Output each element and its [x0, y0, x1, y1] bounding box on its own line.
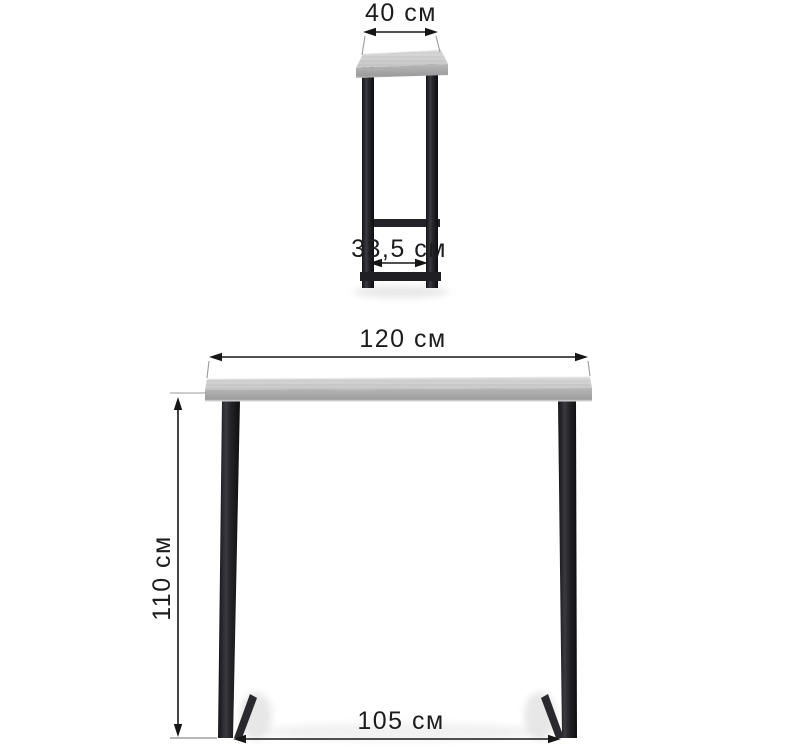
arrow-up-icon	[174, 397, 182, 410]
front-left-leg	[218, 400, 240, 738]
front-height-dimension: 110 см	[148, 393, 217, 738]
arrow-left-icon	[363, 28, 376, 36]
front-view: 120 см 110 см 105 см	[148, 325, 592, 743]
side-tabletop	[356, 50, 448, 78]
front-right-leg	[558, 400, 577, 738]
side-depth-label: 40 см	[365, 0, 437, 27]
front-height-label: 110 см	[148, 535, 176, 621]
arrow-left-icon	[209, 353, 222, 361]
dimension-diagram: 40 см 33,5 см	[0, 0, 800, 753]
front-inner-width-label: 105 см	[357, 707, 444, 735]
side-view: 40 см 33,5 см	[351, 0, 449, 298]
front-width-dimension: 120 см	[207, 325, 590, 378]
front-width-label: 120 см	[359, 325, 446, 353]
arrow-right-icon	[575, 353, 588, 361]
arrow-right-icon	[425, 28, 438, 36]
side-depth-dimension: 40 см	[362, 0, 440, 55]
arrow-down-icon	[174, 724, 182, 737]
side-inner-depth-dimension: 33,5 см	[351, 235, 447, 267]
diagram-canvas: 40 см 33,5 см	[0, 0, 800, 753]
side-front-floor-bar	[360, 272, 441, 281]
front-tabletop	[205, 377, 592, 401]
side-inner-depth-label: 33,5 см	[351, 235, 447, 263]
